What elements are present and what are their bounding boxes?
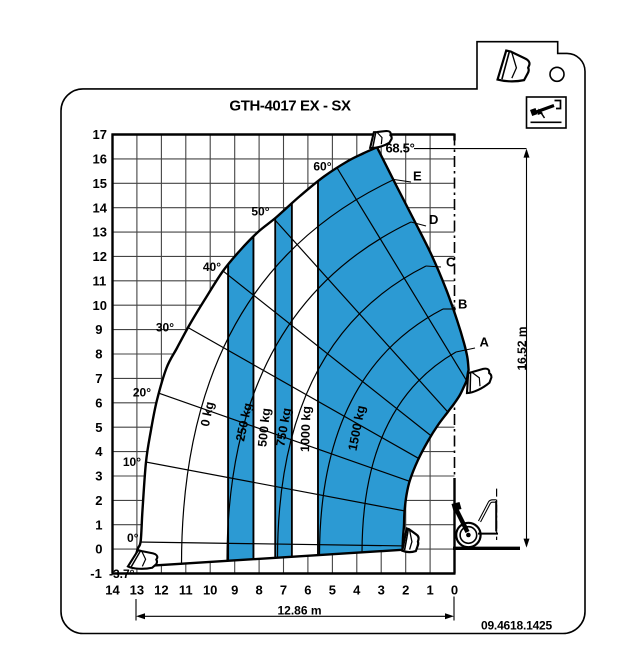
svg-text:15: 15 — [93, 176, 107, 191]
svg-text:2: 2 — [95, 493, 102, 508]
svg-text:-1: -1 — [90, 566, 102, 581]
svg-text:13: 13 — [93, 225, 107, 240]
svg-text:30°: 30° — [156, 321, 174, 335]
svg-text:16.52 m: 16.52 m — [515, 326, 529, 370]
svg-text:D: D — [429, 212, 438, 227]
svg-text:12: 12 — [154, 583, 168, 598]
svg-text:14: 14 — [93, 200, 108, 215]
svg-text:11: 11 — [93, 273, 107, 288]
svg-text:-3.7°: -3.7° — [109, 567, 135, 581]
svg-text:9: 9 — [95, 322, 102, 337]
svg-text:4: 4 — [95, 444, 103, 459]
svg-text:E: E — [413, 169, 422, 184]
svg-text:6: 6 — [95, 395, 102, 410]
svg-text:4: 4 — [353, 583, 361, 598]
svg-text:1: 1 — [95, 517, 102, 532]
svg-text:10: 10 — [93, 298, 107, 313]
svg-text:7: 7 — [280, 583, 287, 598]
svg-text:16: 16 — [93, 152, 107, 167]
svg-text:20°: 20° — [133, 386, 151, 400]
svg-text:2: 2 — [402, 583, 409, 598]
svg-text:13: 13 — [130, 583, 144, 598]
svg-text:5: 5 — [95, 420, 102, 435]
svg-text:0: 0 — [95, 542, 102, 557]
svg-text:40°: 40° — [203, 260, 221, 274]
svg-text:60°: 60° — [313, 160, 331, 174]
svg-text:3: 3 — [95, 469, 102, 484]
svg-text:7: 7 — [95, 371, 102, 386]
svg-text:8: 8 — [95, 347, 102, 362]
svg-text:9: 9 — [231, 583, 238, 598]
svg-text:14: 14 — [105, 583, 120, 598]
svg-text:50°: 50° — [251, 205, 269, 219]
svg-text:10°: 10° — [123, 455, 141, 469]
svg-text:09.4618.1425: 09.4618.1425 — [481, 619, 553, 633]
svg-text:6: 6 — [304, 583, 311, 598]
svg-text:12.86 m: 12.86 m — [277, 604, 321, 618]
svg-text:17: 17 — [93, 127, 107, 142]
svg-text:GTH-4017 EX - SX: GTH-4017 EX - SX — [229, 98, 351, 115]
svg-text:1: 1 — [426, 583, 433, 598]
svg-text:8: 8 — [255, 583, 262, 598]
svg-text:12: 12 — [93, 249, 107, 264]
svg-text:B: B — [458, 297, 467, 312]
svg-text:3: 3 — [378, 583, 385, 598]
svg-text:A: A — [480, 335, 490, 350]
svg-text:C: C — [446, 255, 456, 270]
svg-text:11: 11 — [179, 583, 193, 598]
svg-text:1000 kg: 1000 kg — [298, 406, 314, 452]
svg-text:5: 5 — [329, 583, 336, 598]
svg-text:0: 0 — [451, 583, 458, 598]
svg-text:10: 10 — [203, 583, 217, 598]
svg-text:0°: 0° — [127, 531, 139, 545]
